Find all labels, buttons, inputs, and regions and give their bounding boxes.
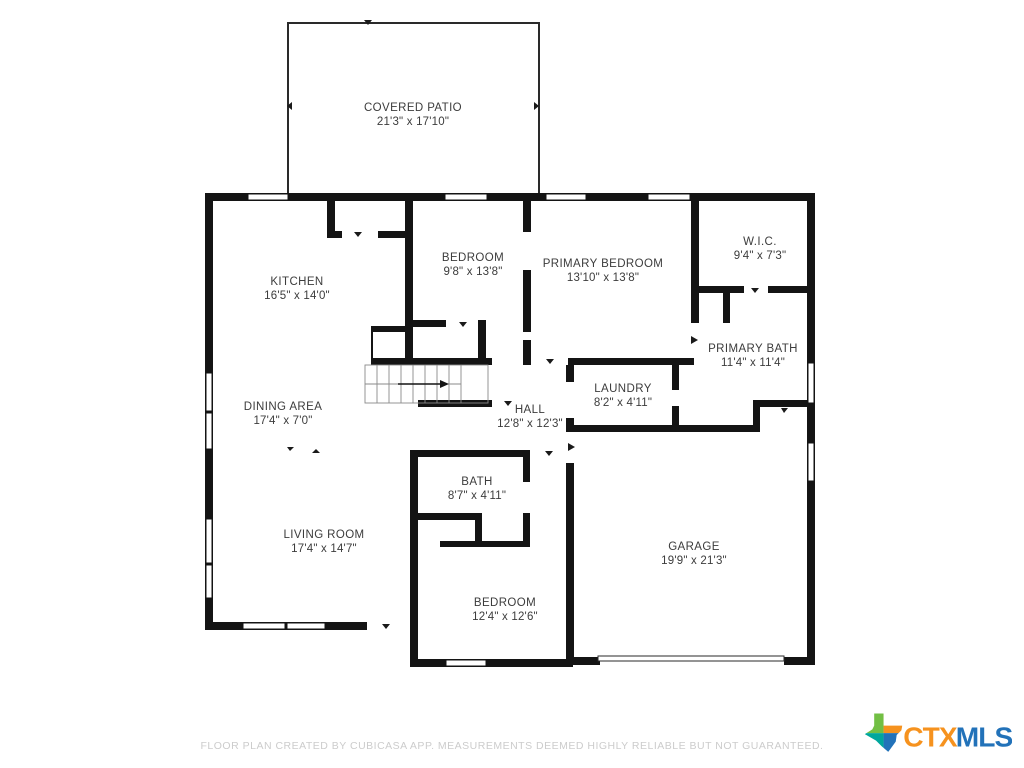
room-label-primary-bath: PRIMARY BATH 11'4" x 11'4" [708,343,798,369]
svg-text:11'4" x 11'4": 11'4" x 11'4" [721,357,785,369]
svg-text:LAUNDRY: LAUNDRY [594,383,652,395]
floor-plan-page: COVERED PATIO 21'3" x 17'10" KITCHEN 16'… [0,0,1024,768]
svg-text:8'2" x 4'11": 8'2" x 4'11" [594,397,652,409]
room-label-wic: W.I.C. 9'4" x 7'3" [734,236,786,262]
svg-text:LIVING ROOM: LIVING ROOM [283,529,364,541]
svg-text:19'9" x 21'3": 19'9" x 21'3" [661,555,727,567]
room-label-hall: HALL 12'8" x 12'3" [497,404,563,430]
room-label-primary-bedroom: PRIMARY BEDROOM 13'10" x 13'8" [543,258,664,284]
floor-plan-svg: COVERED PATIO 21'3" x 17'10" KITCHEN 16'… [0,0,1024,768]
room-label-kitchen: KITCHEN 16'5" x 14'0" [264,276,330,302]
svg-text:BATH: BATH [461,476,492,488]
walls-layer [205,193,815,667]
texas-state-icon [862,712,905,755]
svg-text:13'10" x 13'8": 13'10" x 13'8" [567,272,639,284]
svg-text:16'5" x 14'0": 16'5" x 14'0" [264,290,330,302]
room-label-covered-patio: COVERED PATIO 21'3" x 17'10" [364,102,462,128]
garage-door-opening [598,656,784,661]
room-label-bedroom-bottom: BEDROOM 12'4" x 12'6" [472,597,538,623]
stair-direction-arrow-icon [440,380,449,388]
svg-text:PRIMARY BEDROOM: PRIMARY BEDROOM [543,258,664,270]
svg-text:KITCHEN: KITCHEN [270,276,323,288]
svg-text:GARAGE: GARAGE [668,541,720,553]
room-label-bath: BATH 8'7" x 4'11" [448,476,506,502]
logo-mls-text: MLS [956,721,1012,752]
room-label-garage: GARAGE 19'9" x 21'3" [661,541,727,567]
svg-text:COVERED PATIO: COVERED PATIO [364,102,462,114]
svg-text:17'4" x 7'0": 17'4" x 7'0" [253,415,312,427]
ctxmls-logo: CTX MLS [862,710,1012,760]
room-label-laundry: LAUNDRY 8'2" x 4'11" [594,383,652,409]
svg-text:9'8" x 13'8": 9'8" x 13'8" [443,266,502,278]
room-label-living-room: LIVING ROOM 17'4" x 14'7" [283,529,364,555]
svg-text:9'4" x 7'3": 9'4" x 7'3" [734,250,786,262]
logo-ctx-text: CTX [903,721,958,752]
staircase [365,365,488,403]
svg-text:17'4" x 14'7": 17'4" x 14'7" [291,543,357,555]
room-label-dining-area: DINING AREA 17'4" x 7'0" [244,401,323,427]
svg-text:12'4" x 12'6": 12'4" x 12'6" [472,611,538,623]
svg-text:BEDROOM: BEDROOM [474,597,536,609]
room-label-bedroom-top: BEDROOM 9'8" x 13'8" [442,252,504,278]
svg-text:21'3" x 17'10": 21'3" x 17'10" [377,116,449,128]
svg-text:BEDROOM: BEDROOM [442,252,504,264]
svg-text:PRIMARY BATH: PRIMARY BATH [708,343,798,355]
svg-text:12'8" x 12'3": 12'8" x 12'3" [497,418,563,430]
svg-text:8'7" x 4'11": 8'7" x 4'11" [448,490,506,502]
svg-text:DINING AREA: DINING AREA [244,401,323,413]
svg-text:W.I.C.: W.I.C. [743,236,777,248]
svg-text:HALL: HALL [515,404,546,416]
